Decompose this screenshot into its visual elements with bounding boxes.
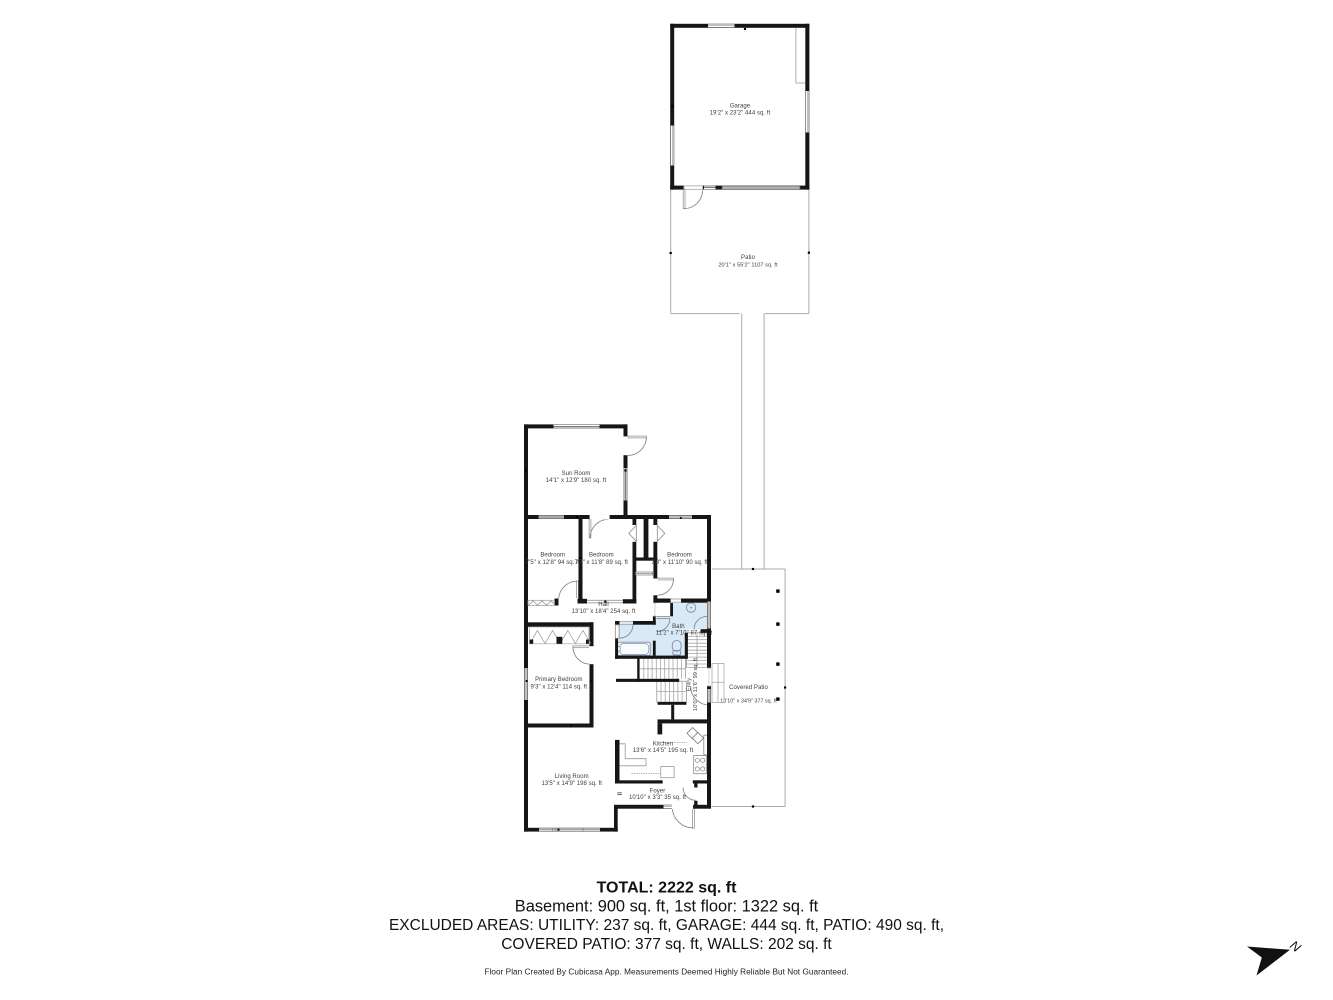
svg-text:EXCLUDED AREAS: UTILITY: 237 s: EXCLUDED AREAS: UTILITY: 237 sq. ft, GAR… bbox=[389, 917, 944, 934]
svg-text:10'10" x 34'9" 377 sq. ft: 10'10" x 34'9" 377 sq. ft bbox=[720, 699, 777, 705]
svg-text:Patio: Patio bbox=[741, 255, 756, 261]
svg-text:14'1" x 12'9" 180 sq. ft: 14'1" x 12'9" 180 sq. ft bbox=[546, 478, 607, 484]
svg-text:Primary Bedroom: Primary Bedroom bbox=[535, 677, 582, 683]
svg-text:13'10" x 18'4" 254 sq. ft: 13'10" x 18'4" 254 sq. ft bbox=[572, 609, 636, 615]
svg-text:7'8" x 11'10" 90 sq. ft: 7'8" x 11'10" 90 sq. ft bbox=[651, 560, 708, 566]
svg-text:TOTAL: 2222 sq. ft: TOTAL: 2222 sq. ft bbox=[597, 880, 738, 897]
svg-text:Living Room: Living Room bbox=[555, 774, 589, 780]
svg-text:Bedroom: Bedroom bbox=[589, 553, 614, 559]
svg-text:10'10" x 3'3" 35 sq. ft: 10'10" x 3'3" 35 sq. ft bbox=[629, 795, 686, 801]
svg-text:10'0" x 11'6" 99 sq. ft: 10'0" x 11'6" 99 sq. ft bbox=[693, 658, 699, 711]
svg-text:Bedroom: Bedroom bbox=[540, 553, 565, 559]
svg-text:20'1" x 55'2" 1107 sq. ft: 20'1" x 55'2" 1107 sq. ft bbox=[718, 262, 778, 268]
svg-text:19'2" x 23'2" 444 sq. ft: 19'2" x 23'2" 444 sq. ft bbox=[710, 111, 771, 117]
svg-text:COVERED PATIO: 377 sq. ft, WAL: COVERED PATIO: 377 sq. ft, WALLS: 202 sq… bbox=[501, 936, 832, 953]
svg-text:Floor Plan Created By Cubicasa: Floor Plan Created By Cubicasa App. Meas… bbox=[484, 968, 848, 977]
svg-text:7'7" x 11'8" 89 sq. ft: 7'7" x 11'8" 89 sq. ft bbox=[575, 560, 629, 566]
svg-text:7'5" x 12'8" 94 sq. ft: 7'5" x 12'8" 94 sq. ft bbox=[526, 560, 580, 566]
svg-text:Foyer: Foyer bbox=[650, 788, 666, 794]
svg-text:Entry: Entry bbox=[687, 678, 693, 691]
svg-text:Sun Room: Sun Room bbox=[562, 471, 591, 477]
svg-text:Covered Patio: Covered Patio bbox=[729, 685, 768, 691]
svg-text:Basement: 900 sq. ft, 1st floo: Basement: 900 sq. ft, 1st floor: 1322 sq… bbox=[515, 898, 819, 916]
svg-text:Kitchen: Kitchen bbox=[653, 741, 673, 747]
svg-text:Bath: Bath bbox=[672, 624, 685, 630]
svg-text:Bedroom: Bedroom bbox=[667, 553, 692, 559]
svg-text:Garage: Garage bbox=[730, 104, 751, 110]
svg-text:13'6" x 14'5" 195 sq. ft: 13'6" x 14'5" 195 sq. ft bbox=[633, 748, 694, 754]
svg-text:Hall: Hall bbox=[598, 602, 609, 608]
svg-text:13'5" x 14'9" 198 sq. ft: 13'5" x 14'9" 198 sq. ft bbox=[541, 781, 602, 787]
svg-text:9'3" x 12'4" 114 sq. ft: 9'3" x 12'4" 114 sq. ft bbox=[530, 684, 587, 690]
